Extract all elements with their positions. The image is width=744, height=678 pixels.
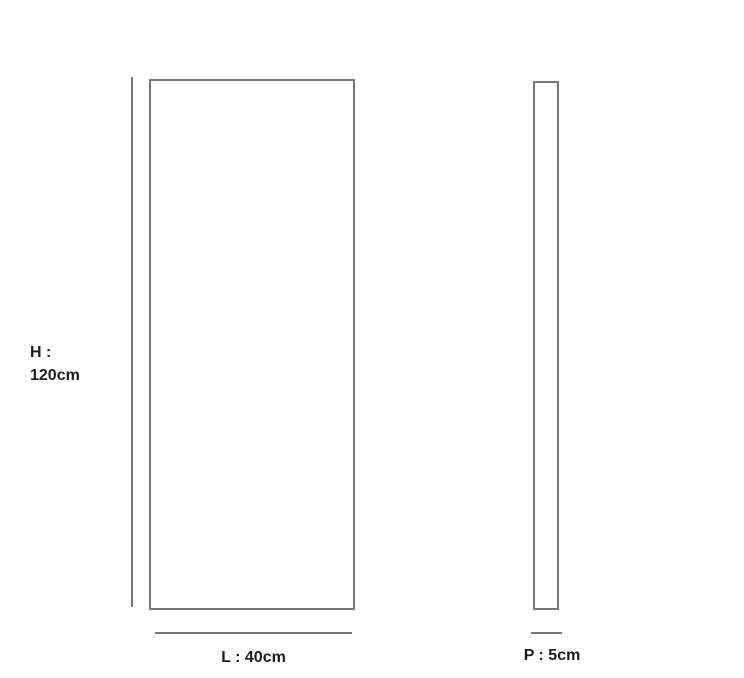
dimension-diagram: H : 120cm L : 40cm P : 5cm [0,0,744,678]
height-label-value: 120cm [30,364,80,387]
length-dimension-label: L : 40cm [155,646,352,669]
depth-dimension-label: P : 5cm [502,644,602,667]
height-label-prefix: H : [30,341,80,364]
depth-dimension-line [531,632,562,634]
length-dimension-line [155,632,352,634]
height-dimension-label: H : 120cm [30,341,80,387]
height-dimension-line [131,77,133,607]
side-view-rectangle [533,81,559,610]
front-view-rectangle [149,79,355,610]
